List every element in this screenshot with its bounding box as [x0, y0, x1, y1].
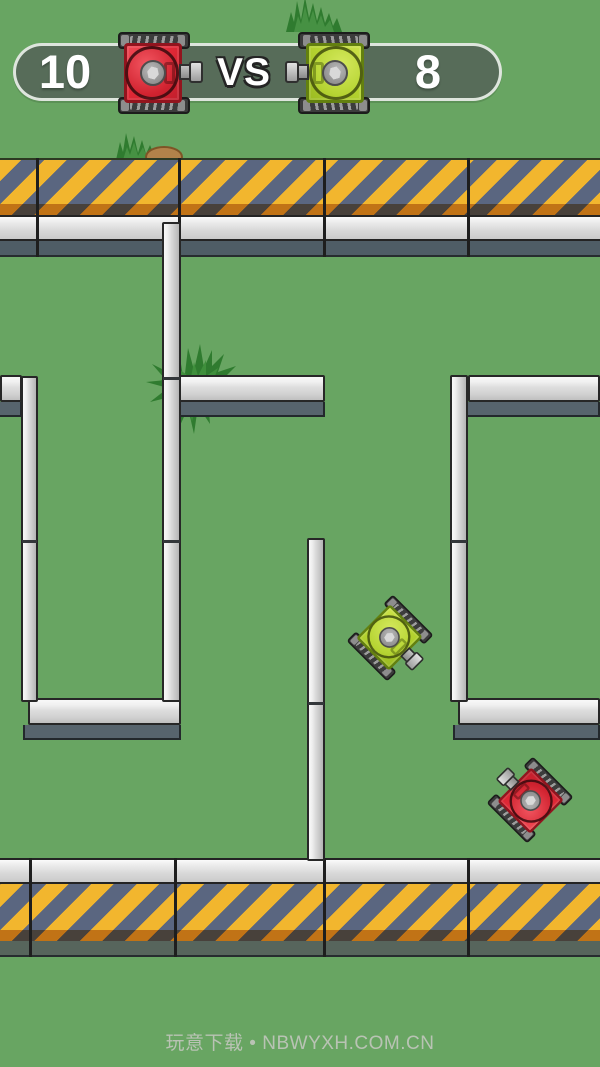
wall-right-top [468, 375, 600, 402]
barrier-segment-divider [323, 158, 326, 257]
hazard-stripes [0, 158, 600, 215]
footer-credit: 玩意下载 • NBWYXH.COM.CN [0, 1028, 600, 1055]
tank-bolt-icon [146, 66, 161, 81]
wall-drop-shadow [23, 725, 181, 740]
wall-drop-shadow [463, 402, 600, 417]
left-score: 10 [20, 44, 110, 100]
barrier-wall-row [0, 858, 600, 884]
tank-hub [140, 60, 166, 86]
tank-bolt-icon [524, 794, 537, 807]
wall-left-vertical [21, 376, 38, 702]
barrier-drop-shadow [0, 941, 600, 957]
wall-drop-shadow [0, 402, 22, 417]
barrier-wall-row [0, 215, 600, 241]
barrier-segment-divider [29, 858, 32, 957]
tank-hub [322, 60, 348, 86]
game-stage[interactable]: 10 VS 8 玩意下载 • NBWYXH.COM.CN [0, 0, 600, 1067]
wall-drop-shadow [167, 402, 325, 417]
wall-lower-vertical [307, 538, 325, 861]
wall-left-bottom [28, 698, 181, 725]
wall-mid-top [172, 375, 325, 402]
right-score: 8 [383, 44, 473, 100]
barrier-drop-shadow [0, 241, 600, 257]
barrier-segment-divider [174, 858, 177, 957]
vs-label: VS [204, 47, 284, 99]
field-green-tank[interactable] [346, 594, 434, 682]
hazard-stripe-shadow [0, 930, 600, 941]
wall-left-stub [0, 375, 22, 402]
field-red-tank[interactable] [486, 756, 574, 844]
tank-bolt-icon [383, 631, 396, 644]
wall-seam [308, 702, 324, 705]
scoreboard: 10 VS 8 [0, 0, 600, 130]
hazard-stripe-shadow [0, 204, 600, 215]
bottom-hazard-barrier [0, 858, 600, 957]
tank-bolt-icon [328, 66, 343, 81]
wall-right-vertical [450, 375, 468, 702]
barrier-segment-divider [467, 858, 470, 957]
scoreboard-red-tank-icon[interactable] [117, 32, 191, 114]
hazard-stripes [0, 884, 600, 941]
wall-seam [163, 377, 180, 380]
wall-seam [163, 540, 180, 543]
barrier-segment-divider [36, 158, 39, 257]
wall-center-vertical [162, 222, 181, 702]
top-hazard-barrier [0, 158, 600, 257]
tank-muzzle [285, 61, 299, 83]
scoreboard-green-tank-icon[interactable] [297, 32, 371, 114]
tank-muzzle [189, 61, 203, 83]
wall-right-mid [458, 698, 600, 725]
wall-drop-shadow [453, 725, 600, 740]
barrier-segment-divider [323, 858, 326, 957]
wall-seam [451, 540, 467, 543]
barrier-segment-divider [467, 158, 470, 257]
wall-seam [22, 540, 37, 543]
